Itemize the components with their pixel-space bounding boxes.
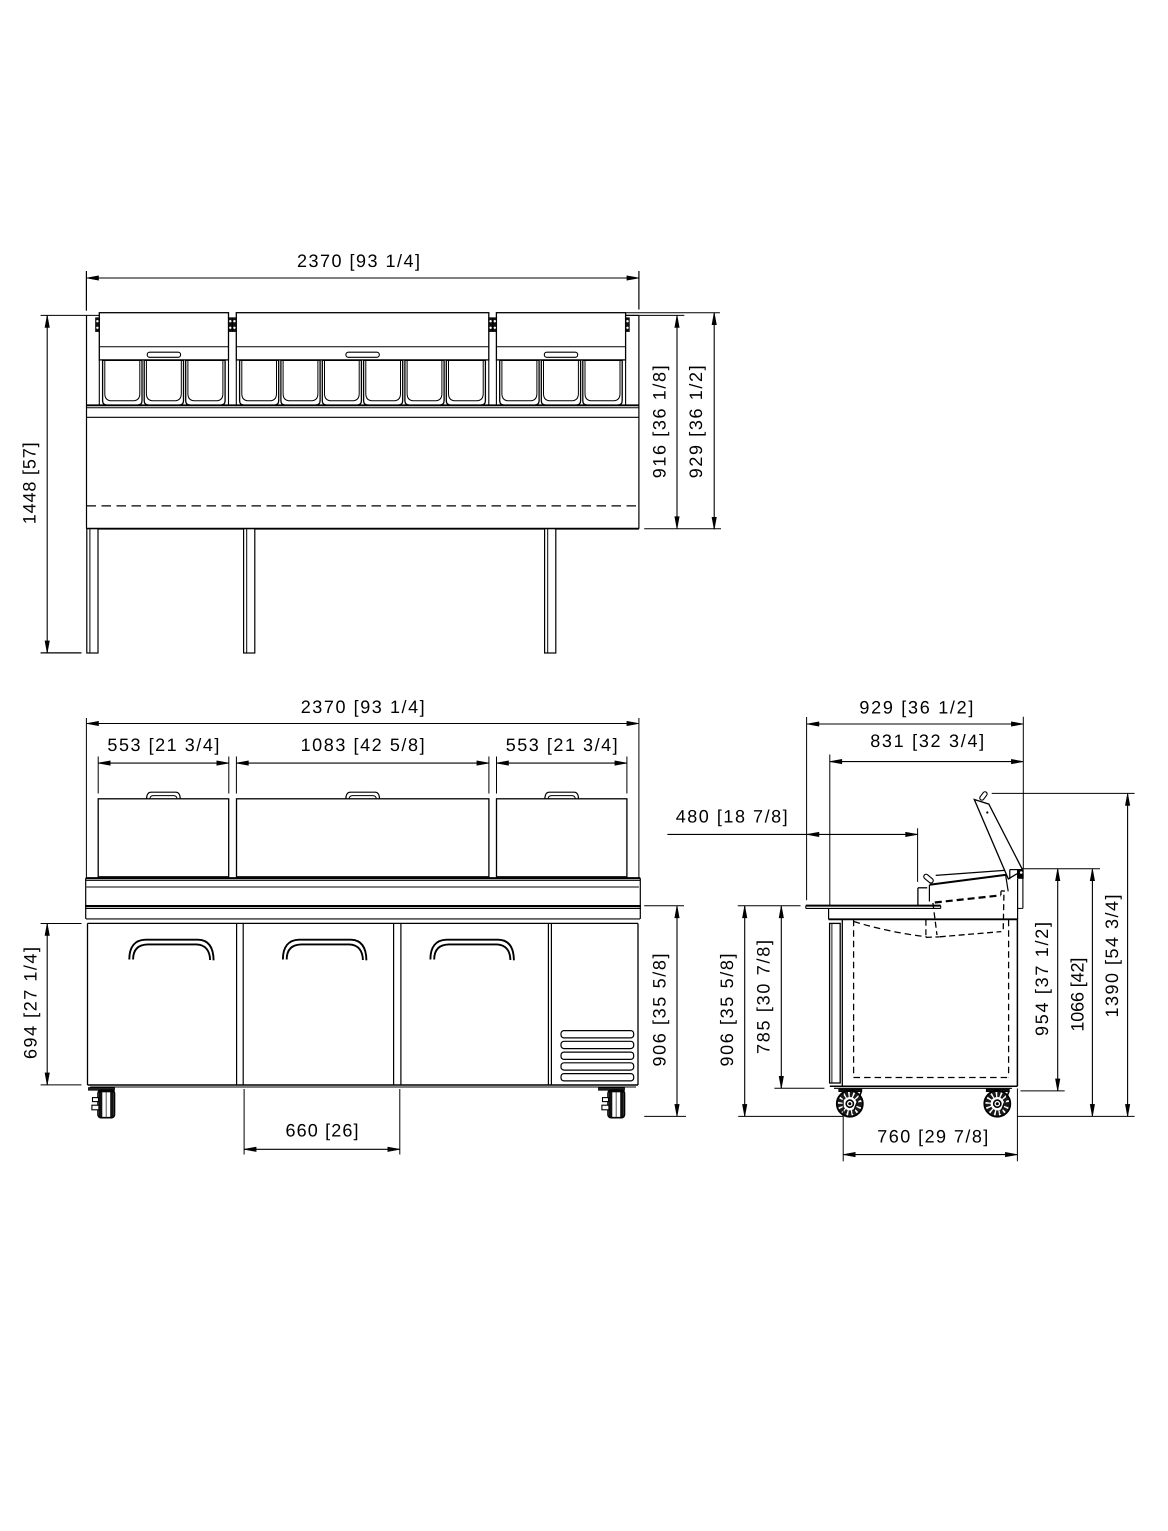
svg-text:831 [32 3/4]: 831 [32 3/4] [870, 731, 984, 751]
svg-text:553 [21 3/4]: 553 [21 3/4] [506, 735, 618, 755]
svg-text:785 [30 7/8]: 785 [30 7/8] [754, 940, 774, 1054]
svg-text:480 [18 7/8]: 480 [18 7/8] [676, 807, 788, 827]
svg-text:2370 [93 1/4]: 2370 [93 1/4] [301, 697, 425, 717]
svg-text:906 [35 5/8]: 906 [35 5/8] [717, 954, 737, 1067]
svg-text:929 [36 1/2]: 929 [36 1/2] [686, 365, 706, 478]
svg-text:954 [37 1/2]: 954 [37 1/2] [1032, 922, 1052, 1036]
svg-text:2370 [93 1/4]: 2370 [93 1/4] [297, 251, 420, 271]
svg-text:929 [36 1/2]: 929 [36 1/2] [859, 697, 973, 717]
svg-text:694 [27 1/4]: 694 [27 1/4] [21, 947, 41, 1059]
svg-text:1390 [54 3/4]: 1390 [54 3/4] [1102, 895, 1122, 1018]
svg-text:660 [26]: 660 [26] [286, 1121, 359, 1141]
svg-text:760 [29 7/8]: 760 [29 7/8] [877, 1126, 988, 1146]
svg-text:1066 [42]: 1066 [42] [1067, 958, 1087, 1032]
svg-text:1083 [42 5/8]: 1083 [42 5/8] [301, 735, 425, 755]
svg-text:916 [36 1/8]: 916 [36 1/8] [649, 365, 669, 478]
svg-text:1448 [57]: 1448 [57] [20, 442, 40, 524]
svg-text:906 [35 5/8]: 906 [35 5/8] [650, 954, 670, 1067]
svg-text:553 [21 3/4]: 553 [21 3/4] [107, 735, 219, 755]
